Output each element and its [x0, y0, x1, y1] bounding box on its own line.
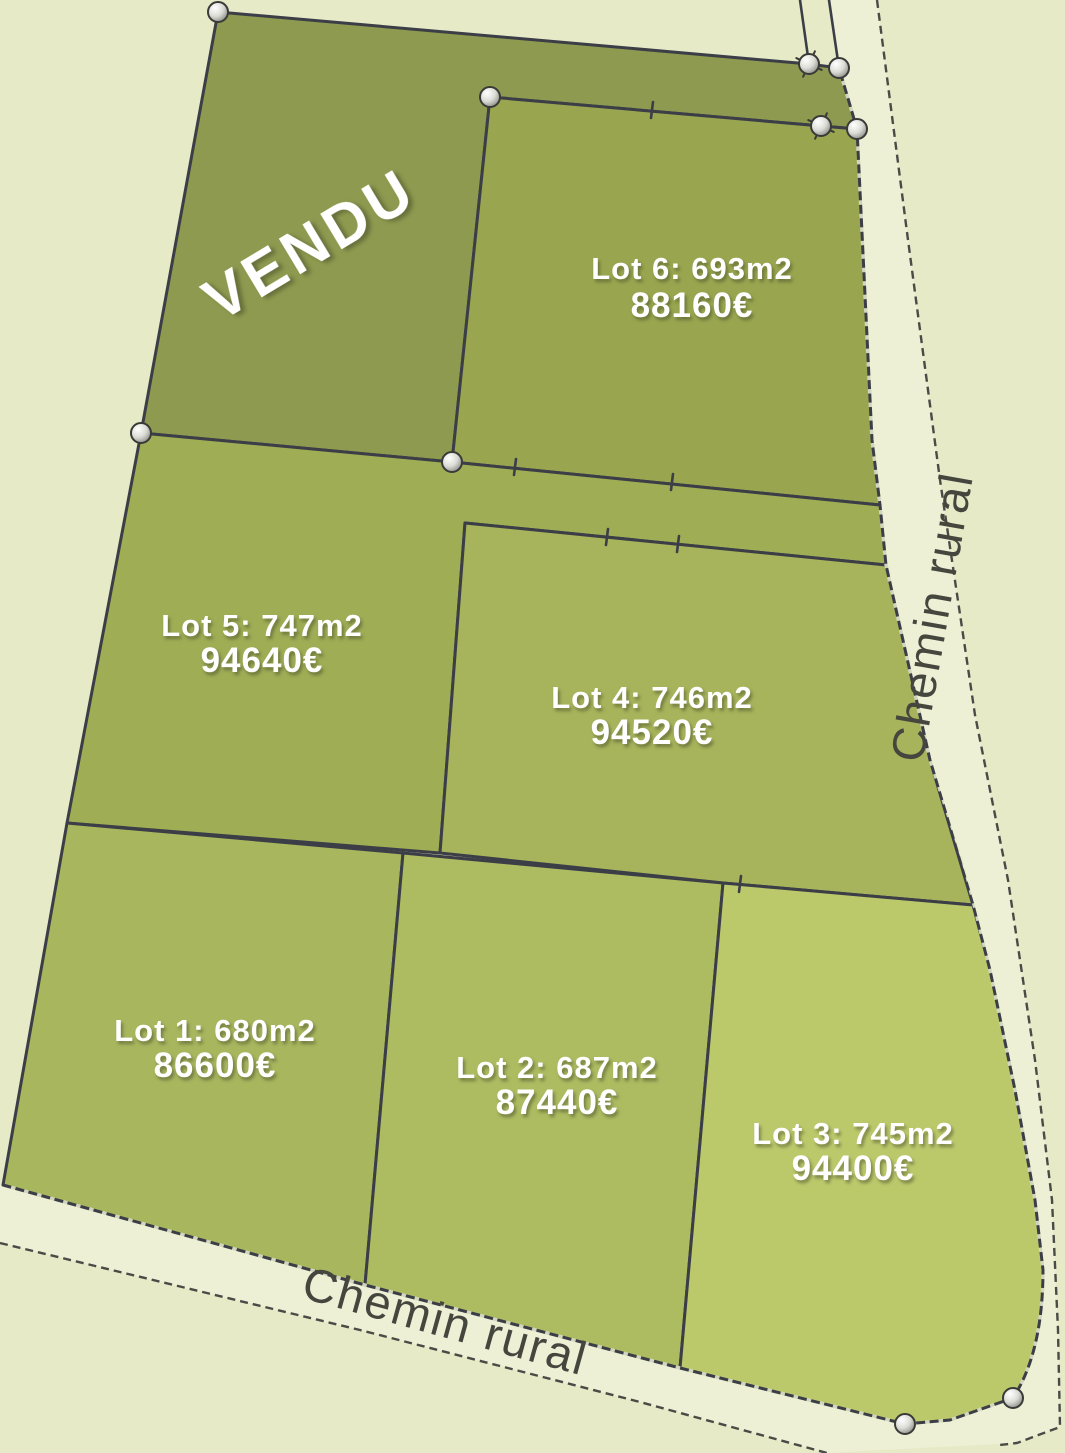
lot-1-price-label: 86600€ [154, 1046, 277, 1085]
lot-4-area-label: Lot 4: 746m2 [551, 680, 753, 715]
survey-marker [829, 58, 849, 78]
survey-marker [811, 116, 831, 136]
survey-marker [442, 452, 462, 472]
survey-marker [895, 1414, 915, 1434]
survey-marker [480, 87, 500, 107]
survey-marker [131, 423, 151, 443]
lot-3-price-label: 94400€ [792, 1149, 915, 1188]
lot-1-area-label: Lot 1: 680m2 [114, 1013, 316, 1048]
survey-marker [1003, 1388, 1023, 1408]
lot-2-area-label: Lot 2: 687m2 [456, 1050, 658, 1085]
site-plan: VENDU Lot 6: 693m2 88160€ Lot 5: 747m2 9… [0, 0, 1065, 1453]
survey-marker [208, 2, 228, 22]
lot-5-price-label: 94640€ [201, 641, 324, 680]
lot-5-area-label: Lot 5: 747m2 [161, 608, 363, 643]
lot-4-price-label: 94520€ [591, 713, 714, 752]
lot-6-price-label: 88160€ [631, 286, 754, 325]
survey-marker [847, 119, 867, 139]
lot-6-area-label: Lot 6: 693m2 [591, 251, 793, 286]
survey-marker [799, 54, 819, 74]
lot-3-area-label: Lot 3: 745m2 [752, 1116, 954, 1151]
lot-2-price-label: 87440€ [496, 1083, 619, 1122]
